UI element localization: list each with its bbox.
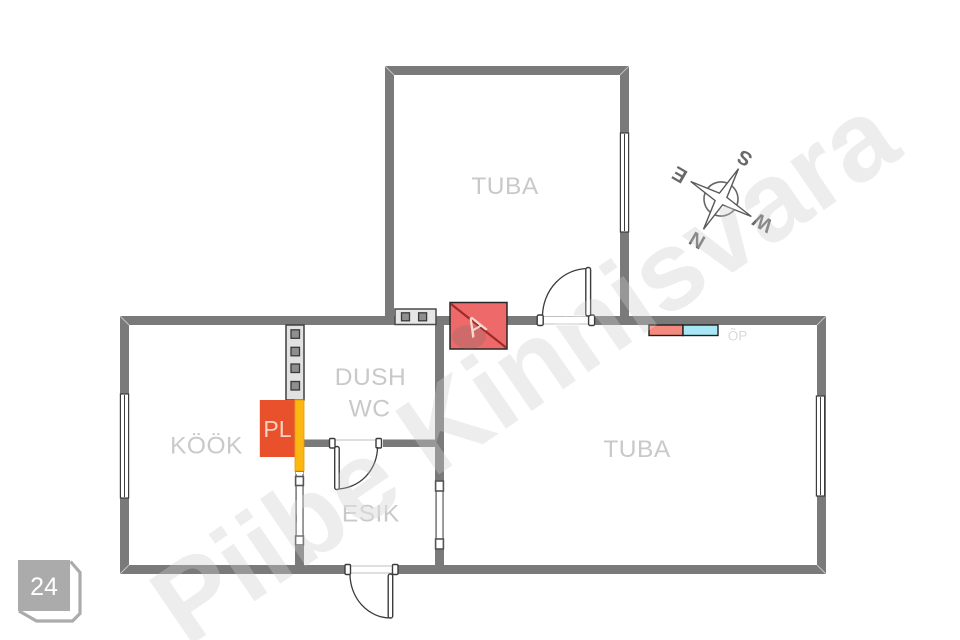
svg-text:KÖÖK: KÖÖK — [170, 433, 243, 460]
svg-text:TUBA: TUBA — [603, 436, 671, 463]
svg-text:PL: PL — [263, 416, 291, 442]
svg-text:ÕP: ÕP — [728, 329, 748, 344]
svg-text:TUBA: TUBA — [471, 173, 539, 200]
svg-text:24: 24 — [30, 573, 58, 601]
